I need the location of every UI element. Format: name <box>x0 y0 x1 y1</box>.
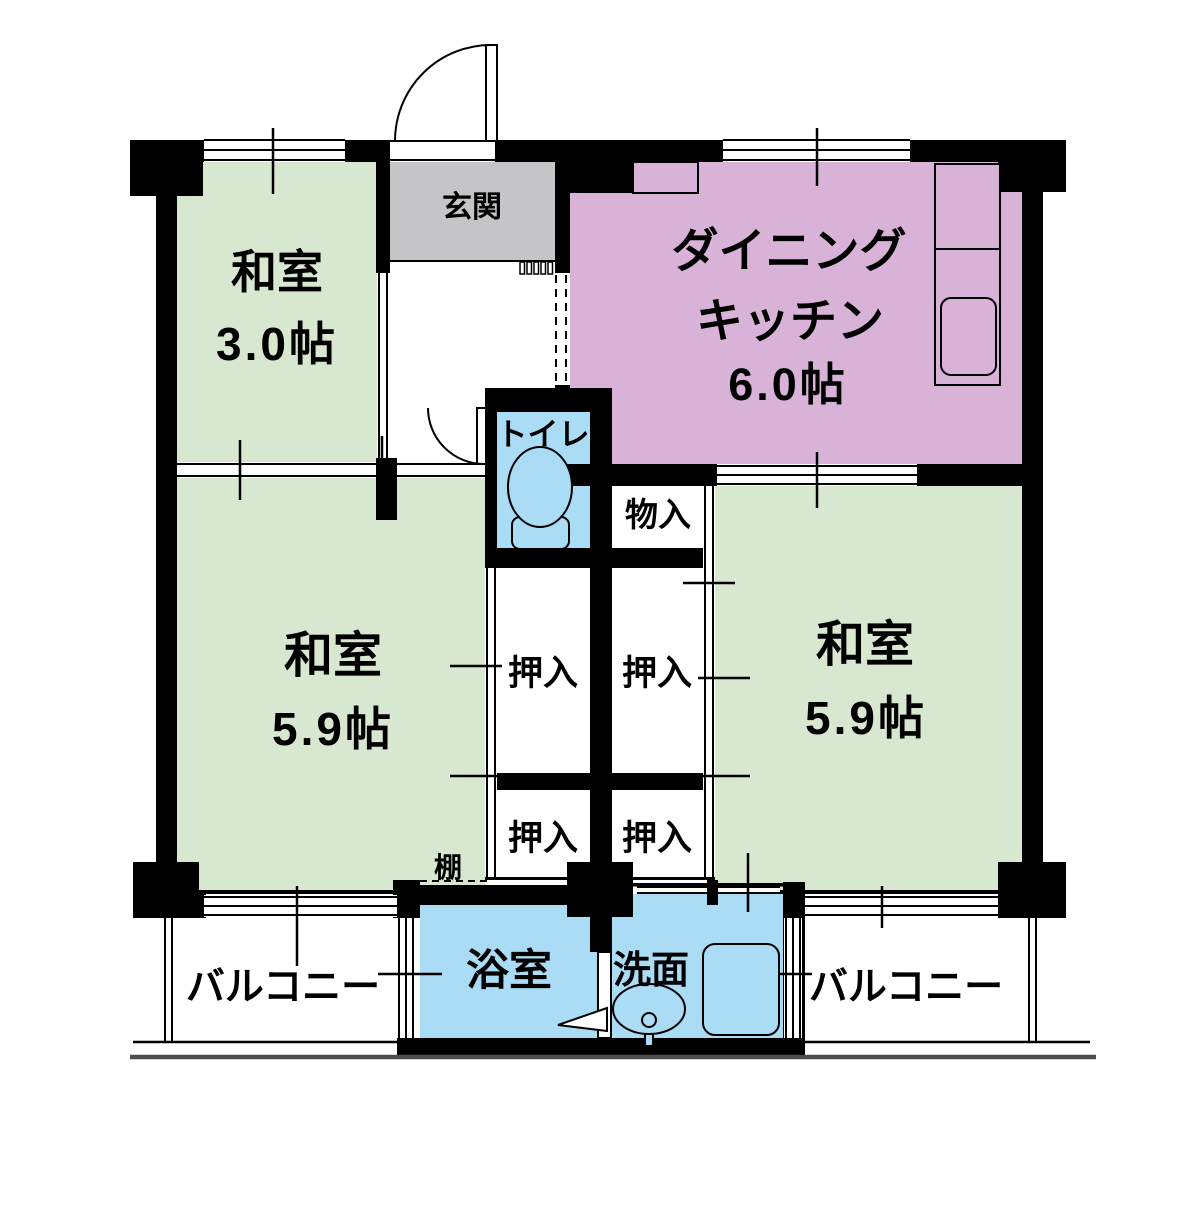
balcony-left-railing <box>165 918 172 1043</box>
wall-closet-bottom <box>485 548 715 568</box>
label-oshiire-upper-right: 押入 <box>622 654 692 693</box>
genkan-step-icon <box>390 261 555 274</box>
wall-genkan-left <box>376 162 390 273</box>
label-dk-size: 6.0帖 <box>728 359 848 410</box>
floor-plan: 和室 3.0帖 玄関 ダイニング キッチン 6.0帖 トイレ 物入 和室 5.9… <box>0 0 1200 1200</box>
wall-center-spine <box>590 388 612 862</box>
label-washitsu-left: 和室 <box>284 629 382 683</box>
wall-bath-left-block <box>393 880 420 918</box>
room-washitsu-left <box>177 477 485 890</box>
washer-pan <box>703 944 779 1035</box>
entrance-opening <box>390 139 495 162</box>
duct-shaft <box>633 162 698 193</box>
step-stripe <box>520 262 525 274</box>
label-washitsu-right: 和室 <box>816 618 914 672</box>
label-balcony-left: バルコニー <box>186 966 380 1009</box>
wall-senmen-divider <box>707 880 718 905</box>
kitchen-sink-icon <box>941 298 996 375</box>
label-oshiire-lower-right: 押入 <box>622 819 692 858</box>
wall-dk-bottom-left <box>555 464 717 486</box>
label-dk-line1: ダイニング <box>672 224 907 277</box>
pillar-top-right <box>998 140 1066 192</box>
label-oshiire-lower-left: 押入 <box>508 819 578 858</box>
toilet-door-icon <box>428 408 486 464</box>
door-arc-icon <box>428 408 484 464</box>
toilet-bowl <box>508 447 572 527</box>
step-stripe <box>527 262 532 274</box>
kitchen-counter-icon <box>935 164 1000 385</box>
label-toilet: トイレ <box>497 417 590 452</box>
room-washitsu-right <box>715 486 1022 890</box>
label-balcony-right: バルコニー <box>809 966 1003 1009</box>
label-senmen: 洗面 <box>613 950 689 992</box>
floor-plan-drawing: 和室 3.0帖 玄関 ダイニング キッチン 6.0帖 トイレ 物入 和室 5.9… <box>0 0 1200 1200</box>
wall-leftroom-bottom-line <box>177 890 397 894</box>
label-mononyu: 物入 <box>625 496 691 533</box>
step-stripe <box>548 262 553 274</box>
toilet-icon <box>508 447 572 549</box>
toilet-door-leaf <box>477 408 486 464</box>
pillar-top-left <box>130 140 203 196</box>
entrance-door-leaf <box>486 45 497 141</box>
wall-oshiire-divider <box>485 773 715 790</box>
door-arc-icon <box>395 45 491 141</box>
label-dk-line2: キッチン <box>696 294 884 347</box>
wall-dk-top-thick <box>567 140 633 193</box>
label-bath: 浴室 <box>466 947 552 995</box>
step-stripe <box>541 262 546 274</box>
wall-left <box>156 140 177 918</box>
label-washitsu-right-size: 5.9帖 <box>805 692 927 744</box>
entrance-door-icon <box>395 45 497 141</box>
wall-spine-lower <box>590 905 612 952</box>
pillar-hall-corner <box>376 458 397 520</box>
label-oshiire-upper-left: 押入 <box>508 654 578 693</box>
label-genkan: 玄関 <box>442 190 502 224</box>
label-washitsu-small-size: 3.0帖 <box>216 318 338 370</box>
room-washitsu-small <box>177 162 378 466</box>
label-washitsu-left-size: 5.9帖 <box>272 703 394 755</box>
balcony-right-railing <box>1029 918 1036 1043</box>
label-washitsu-small: 和室 <box>231 246 323 298</box>
step-stripe <box>534 262 539 274</box>
wall-leftroom-stub <box>177 890 206 918</box>
wall-dk-bottom-right <box>917 464 1022 486</box>
label-tana: 棚 <box>434 852 462 883</box>
basin-drain <box>642 1013 656 1027</box>
wall-right <box>1022 140 1043 918</box>
